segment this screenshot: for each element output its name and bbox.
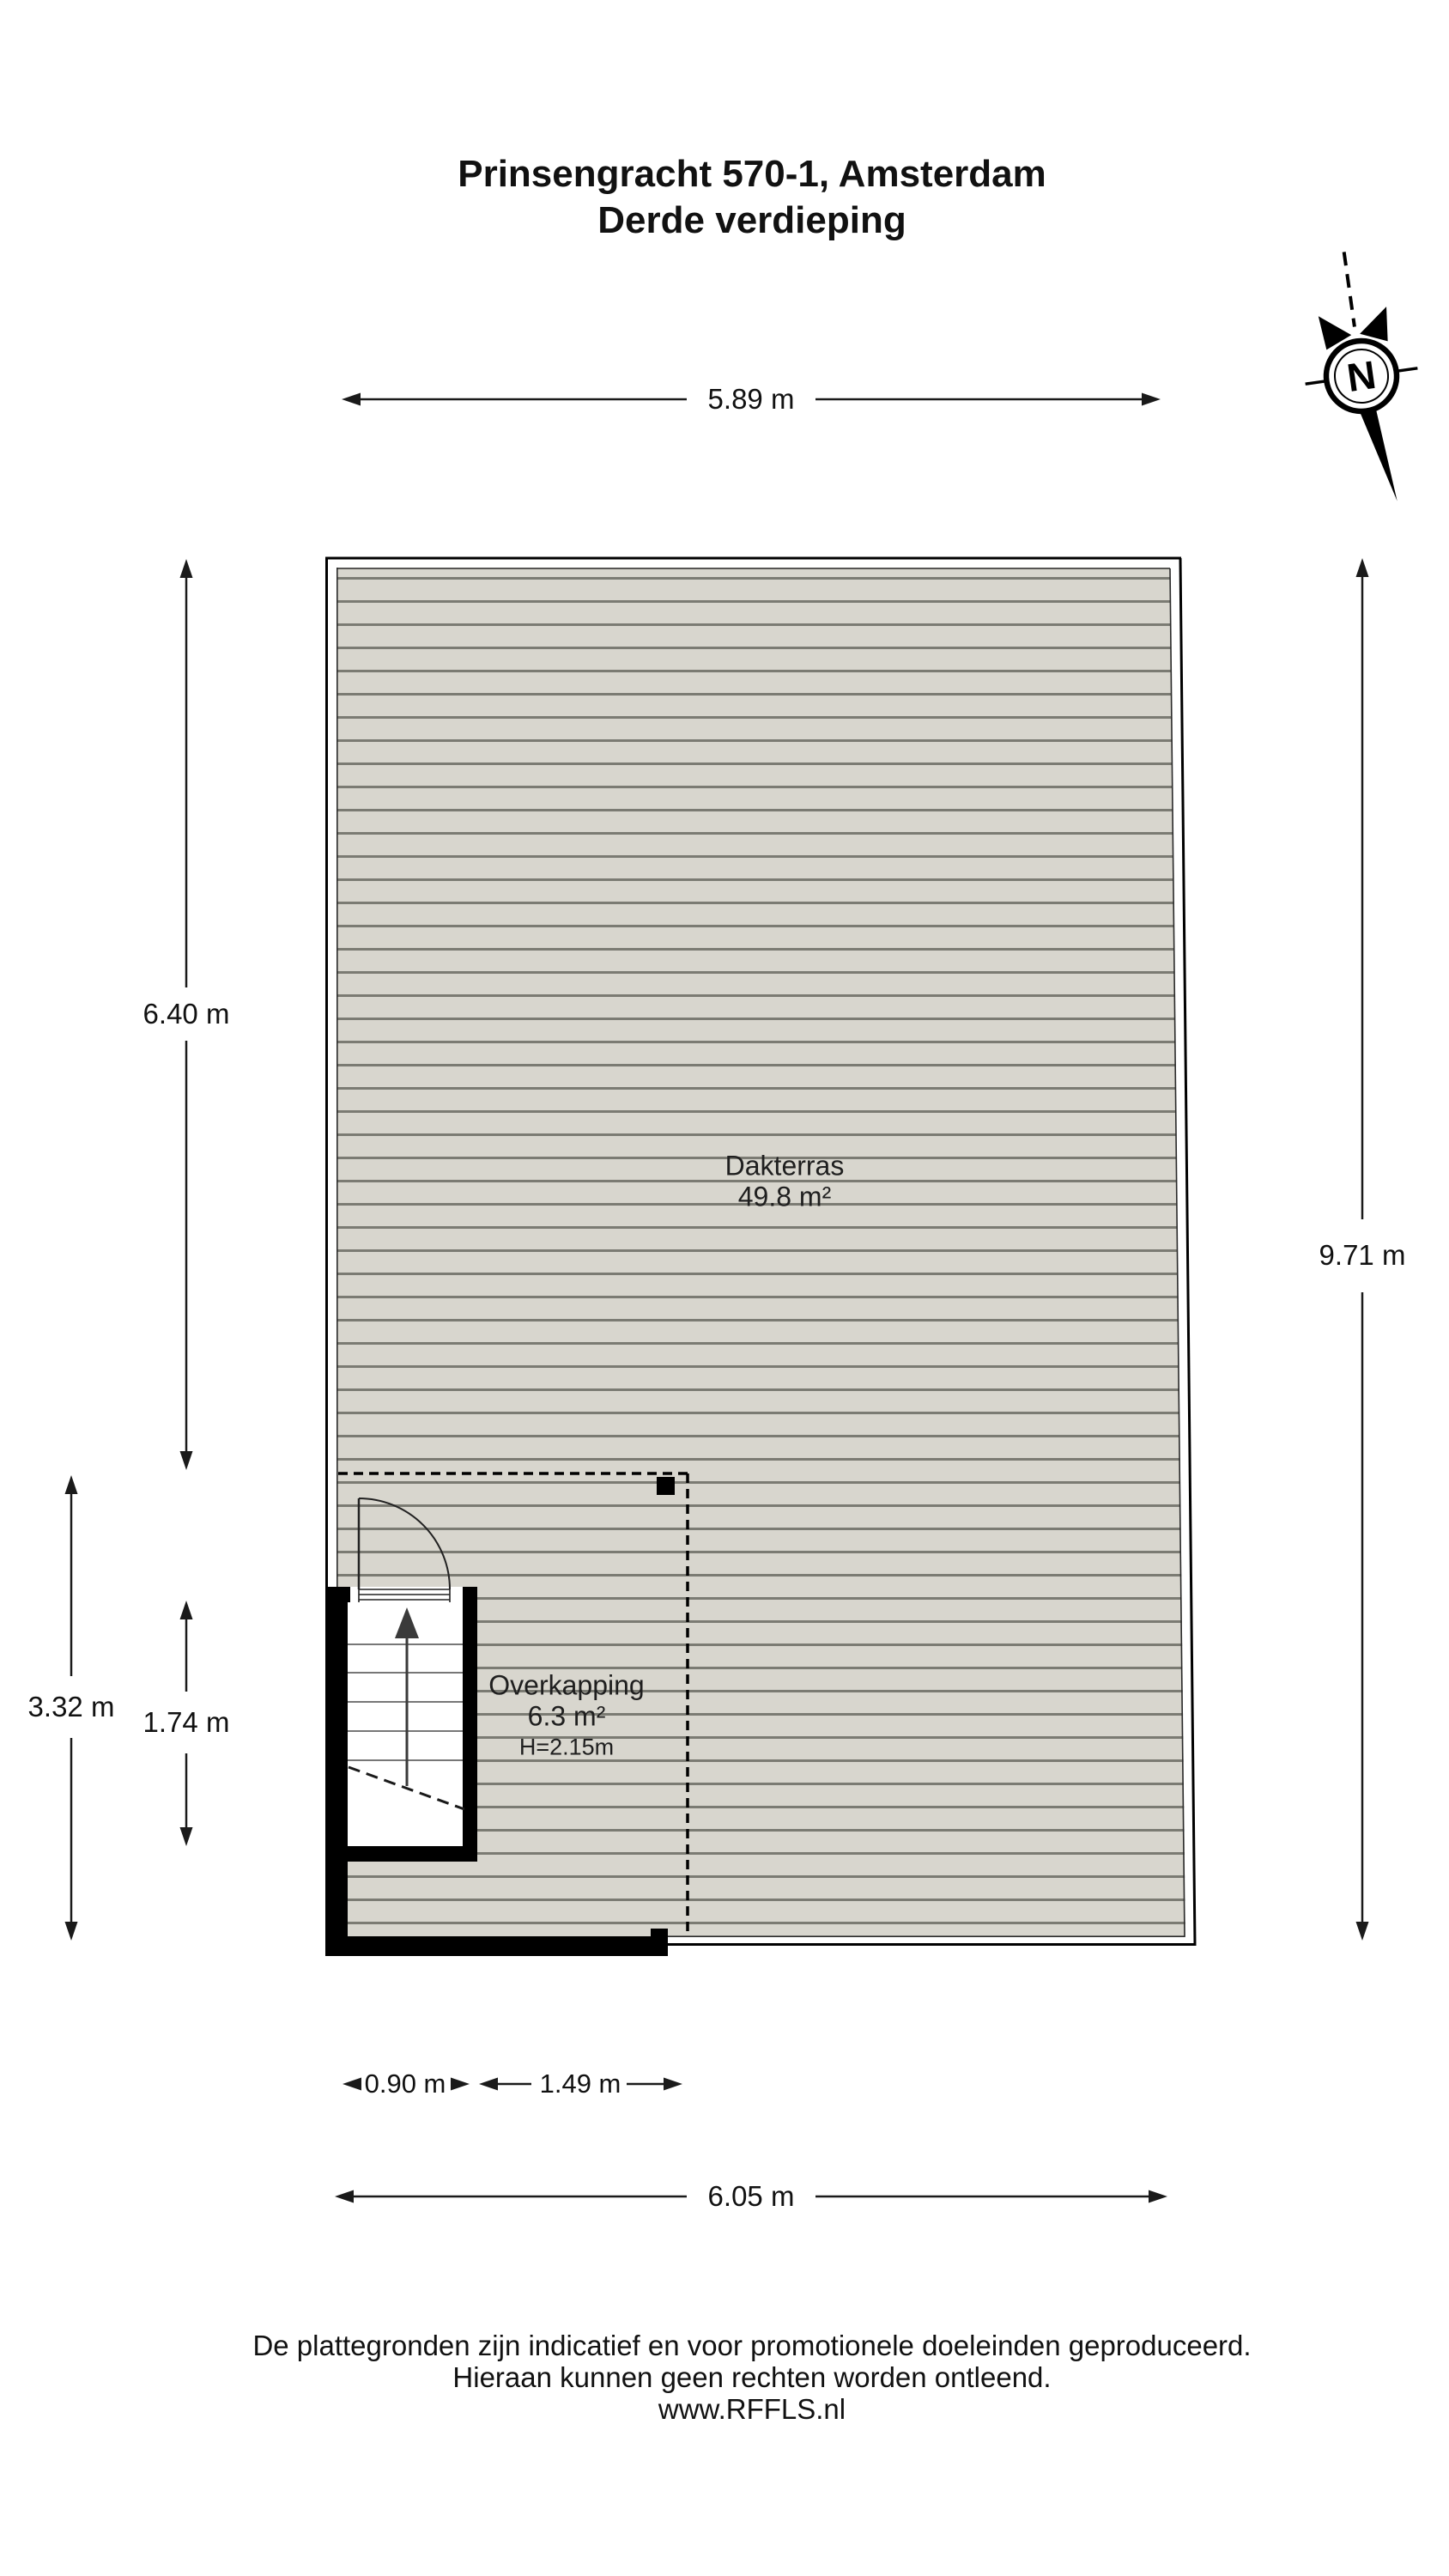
support-post <box>657 1477 675 1495</box>
page-title: Prinsengracht 570-1, Amsterdam <box>458 153 1046 196</box>
dim-bottom-width-label: 6.05 m <box>708 2180 795 2213</box>
dim-stairwell-height-label: 1.74 m <box>143 1706 230 1739</box>
page-subtitle: Derde verdieping <box>597 199 906 242</box>
dimension-lines <box>65 393 1369 2203</box>
dakterras-label: Dakterras <box>725 1151 845 1182</box>
overkapping-height: H=2.15m <box>519 1735 614 1761</box>
overkapping-area: 6.3 m² <box>528 1701 606 1733</box>
staircase <box>348 1602 464 1846</box>
dim-left-lower-label: 3.32 m <box>28 1691 115 1723</box>
dim-top-width-label: 5.89 m <box>708 383 795 416</box>
compass-rose: N <box>1288 244 1435 511</box>
floorplan-page: N Prinsengracht 570-1, Amsterdam Derde v… <box>0 0 1449 2576</box>
dim-right-height-label: 9.71 m <box>1319 1239 1406 1272</box>
overkapping-label: Overkapping <box>488 1670 644 1702</box>
south-spike <box>1358 404 1397 505</box>
door <box>350 1498 463 1602</box>
website-label: www.RFFLS.nl <box>658 2393 846 2426</box>
disclaimer-line-2: Hieraan kunnen geen rechten worden ontle… <box>452 2361 1051 2394</box>
door-swing <box>359 1498 450 1589</box>
dim-overhang-width-label: 1.49 m <box>540 2069 621 2099</box>
north-needle <box>1344 252 1355 326</box>
dim-left-upper-label: 6.40 m <box>143 998 230 1030</box>
dakterras-area: 49.8 m² <box>738 1182 831 1213</box>
disclaimer-line-1: De plattegronden zijn indicatief en voor… <box>252 2330 1251 2362</box>
dim-stairwell-width-label: 0.90 m <box>365 2069 446 2099</box>
